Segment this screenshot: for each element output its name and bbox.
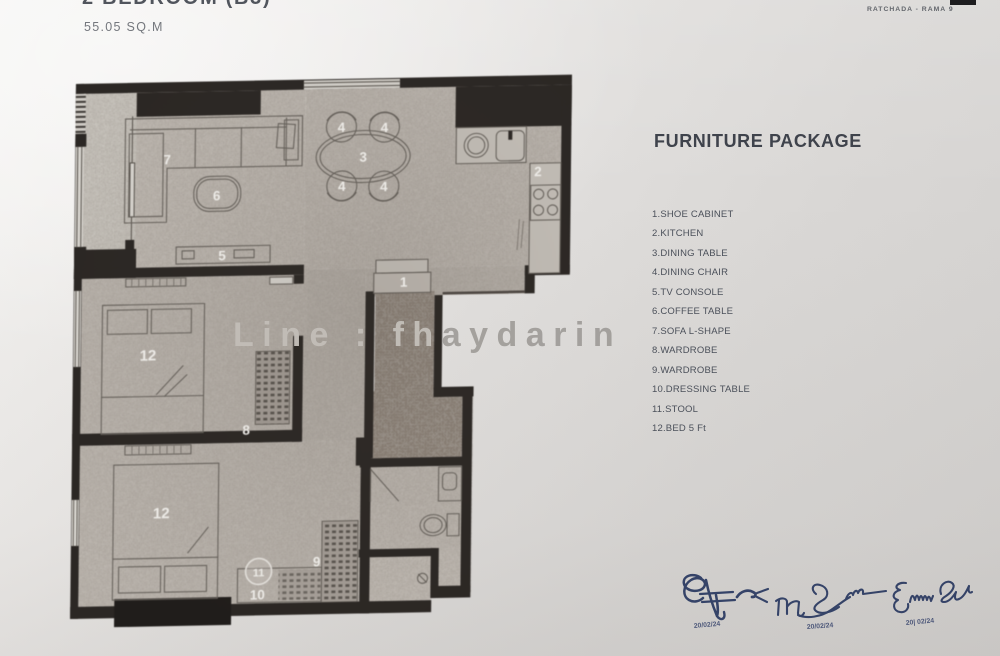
svg-text:20| 02/24: 20| 02/24 xyxy=(906,618,935,627)
svg-text:20/02/24: 20/02/24 xyxy=(807,622,834,631)
svg-text:20/02/24: 20/02/24 xyxy=(694,621,721,630)
